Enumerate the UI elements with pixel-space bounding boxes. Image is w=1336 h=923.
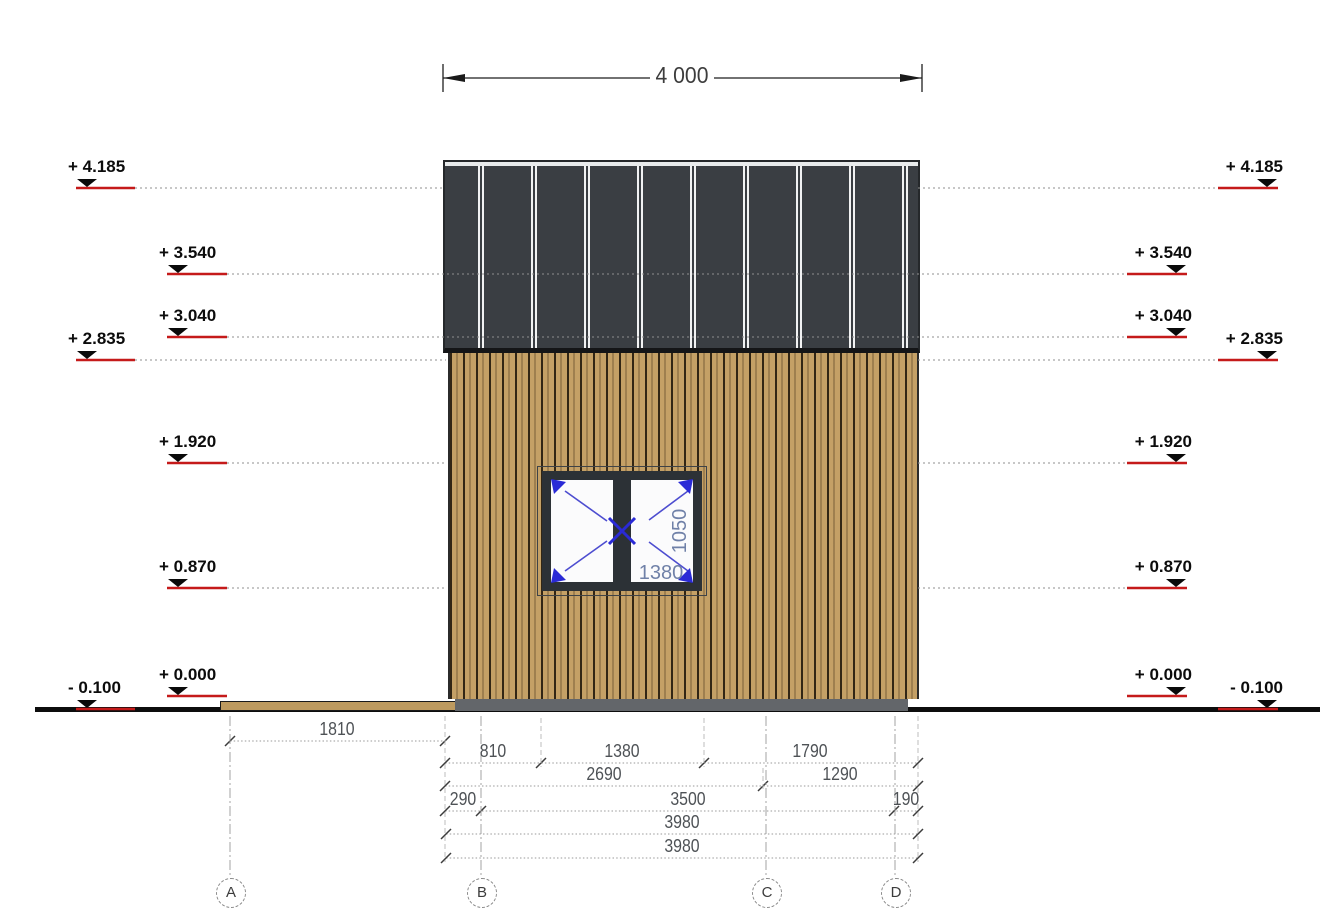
dim-1290: 1290 [803,764,877,785]
level-label-left-3540: + 3.540 [159,243,216,263]
dim-3500: 3500 [651,789,725,810]
level-label-left-0870: + 0.870 [159,557,216,577]
level-label-left-4185: + 4.185 [68,157,125,177]
grid-bubble-c: C [752,878,782,908]
top-dim-arrow-right [900,74,922,82]
dim-3980-lower: 3980 [645,836,719,857]
level-label-left-1920: + 1.920 [159,432,216,452]
level-label-right-2835: + 2.835 [1217,329,1283,349]
grid-bubble-a: A [216,878,246,908]
grid-bubble-b: B [467,878,497,908]
dim-2690: 2690 [567,764,641,785]
overall-width-dimension: 4 000 [627,62,737,89]
elevation-drawing: 1380 1050 4 000 + 4.185 + 3.540 + 3.040 … [0,0,1336,923]
level-label-left-3040: + 3.040 [159,306,216,326]
window-glass-right [631,480,693,582]
dim-290: 290 [426,789,500,810]
terrace-deck [220,701,457,711]
level-label-right-m0100: - 0.100 [1217,678,1283,698]
level-label-left-2835: + 2.835 [68,329,125,349]
level-label-right-0000: + 0.000 [1126,665,1192,685]
top-dim-arrow-left [443,74,465,82]
level-label-right-3540: + 3.540 [1126,243,1192,263]
dim-1380: 1380 [585,741,659,762]
window-glass-left [551,480,613,582]
level-label-right-0870: + 0.870 [1126,557,1192,577]
level-label-left-m0100: - 0.100 [68,678,121,698]
dim-190: 190 [869,789,943,810]
dim-810: 810 [456,741,530,762]
dim-3980-upper: 3980 [645,812,719,833]
roof-cladding [443,160,920,353]
foundation-strip [455,698,908,711]
level-label-right-4185: + 4.185 [1217,157,1283,177]
dim-1790: 1790 [773,741,847,762]
dim-1810: 1810 [300,719,374,740]
level-label-left-0000: + 0.000 [159,665,216,685]
level-label-right-3040: + 3.040 [1126,306,1192,326]
roof-edge-flashing [445,162,918,166]
level-label-right-1920: + 1.920 [1126,432,1192,452]
grid-bubble-d: D [881,878,911,908]
grid-axis-lines [230,716,895,876]
